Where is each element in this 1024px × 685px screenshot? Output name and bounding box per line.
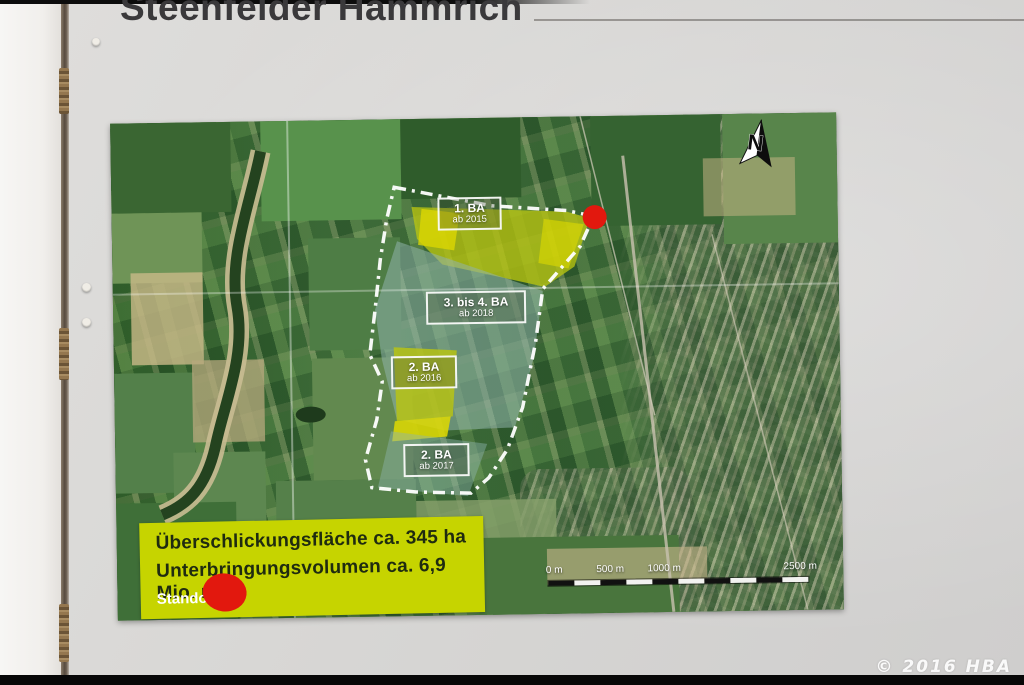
scale-segment	[600, 580, 626, 585]
photo-of-info-board: Steenfelder Hammrich	[0, 0, 1024, 685]
screw	[82, 283, 91, 292]
scale-segment	[782, 577, 808, 582]
copyright-watermark: © 2016 HBA	[876, 657, 1013, 677]
zone-label-year: ab 2018	[432, 309, 520, 321]
zone-label-ba2-2016: 2. BA ab 2016	[391, 355, 458, 389]
scale-segment	[730, 578, 756, 583]
photo-bottom-edge	[0, 675, 1024, 685]
scale-bar: 0 m 500 m 1000 m 2500 m	[548, 561, 808, 591]
scale-segment	[678, 578, 704, 583]
aerial-map: N 1. BA ab 2015 3. bis 4. BA ab 2018 2. …	[110, 112, 844, 620]
zone-label-year: ab 2017	[409, 462, 463, 474]
svg-text:N: N	[746, 129, 765, 156]
wall-left	[0, 0, 61, 685]
zone-label-ba1: 1. BA ab 2015	[437, 197, 502, 231]
scale-segment	[548, 580, 574, 585]
screw	[92, 38, 100, 46]
zone-label-ba2-2017: 2. BA ab 2017	[403, 443, 470, 477]
zone-label-year: ab 2015	[444, 215, 496, 227]
legend-area-line: Überschlickungsfläche ca. 345 ha	[155, 526, 466, 554]
hinge	[59, 604, 69, 662]
page-title: Steenfelder Hammrich	[120, 0, 523, 29]
scale-tick: 1000 m	[647, 563, 681, 575]
scale-segment	[626, 579, 652, 584]
hinge	[59, 68, 69, 114]
legend-box: Überschlickungsfläche ca. 345 ha Unterbr…	[139, 516, 485, 619]
scale-bar-segments	[548, 577, 808, 586]
scale-segment	[574, 580, 600, 585]
zone-label-year: ab 2016	[397, 374, 451, 386]
scale-tick: 2500 m	[783, 561, 817, 573]
scale-tick: 500 m	[596, 564, 624, 575]
scale-segment	[652, 579, 678, 584]
title-rule	[534, 19, 1024, 21]
zone-label-ba34: 3. bis 4. BA ab 2018	[426, 290, 527, 325]
scale-segment	[704, 578, 730, 583]
scale-tick: 0 m	[546, 565, 563, 576]
scale-segment	[756, 577, 782, 582]
hinge	[59, 328, 69, 380]
screw	[82, 318, 91, 327]
